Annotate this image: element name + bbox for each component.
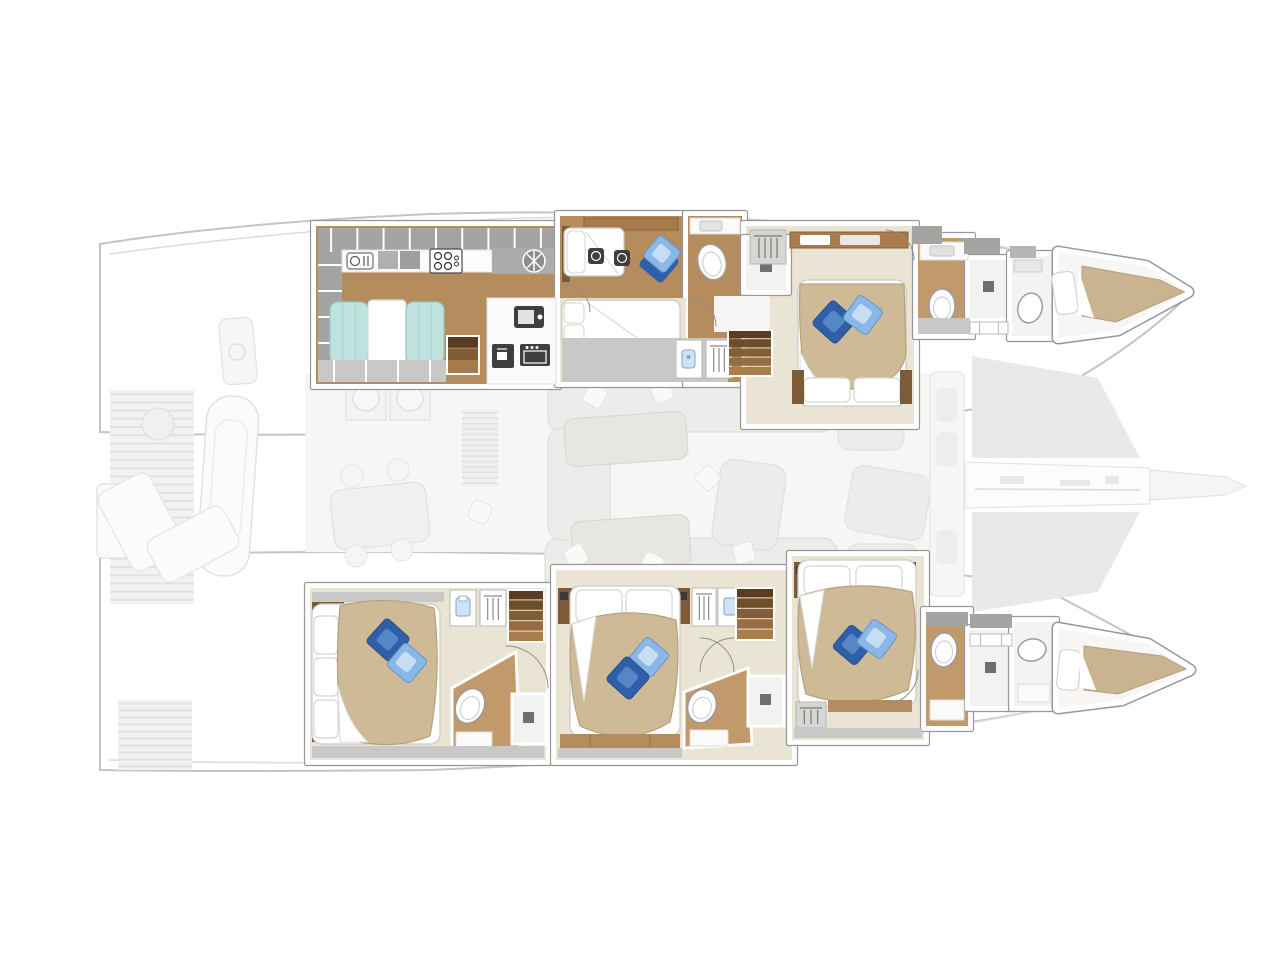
stair-landing <box>714 296 770 332</box>
coffee-cup <box>497 352 507 360</box>
galley-aft-locker <box>318 360 446 382</box>
vip-sink <box>930 246 954 256</box>
galley-steps <box>447 336 479 374</box>
oven-knob-1 <box>526 346 529 349</box>
oven-knob-3 <box>536 346 539 349</box>
fwd-shower-cabinet-top <box>970 614 1012 628</box>
fwd-bench-wood <box>828 700 912 712</box>
forebeam-fitting-2 <box>1060 480 1090 486</box>
bow-wc-cabinet <box>1014 260 1042 272</box>
counter-module-1 <box>378 251 398 269</box>
forebeam-fitting-3 <box>1105 476 1119 484</box>
aft-vanity <box>456 732 492 748</box>
deck-segment-1 <box>912 226 942 244</box>
fwd-locker-bottom <box>794 728 922 738</box>
vip-nightstand-left <box>792 370 804 404</box>
deck-segment-3 <box>1010 246 1036 258</box>
trampoline-aft <box>972 512 1140 612</box>
shower-drain-fwd <box>985 662 996 673</box>
washer-icon <box>588 248 604 264</box>
shower-drain-mid <box>760 694 771 705</box>
twin-pillow-1 <box>564 303 584 323</box>
shower-drain-aft <box>523 712 534 723</box>
shower-drain-vip <box>983 281 994 292</box>
cockpit-chair-3 <box>345 545 367 567</box>
companionway-port <box>508 590 544 642</box>
aft-cabin-locker-bottom <box>312 746 544 758</box>
aft-bed-pillow-1 <box>314 616 338 654</box>
mid-locker-bottom <box>558 748 682 758</box>
trampoline-fwd <box>972 356 1140 458</box>
vip-shelf-item-1 <box>800 235 830 245</box>
cockpit-chair-4 <box>391 539 413 561</box>
cockpit-chair-1 <box>341 465 363 487</box>
cockpit-table <box>329 481 431 551</box>
salon-table-2 <box>570 514 691 572</box>
forebeam-line <box>975 489 1140 490</box>
floorplan-svg <box>0 0 1280 960</box>
forebeam <box>965 462 1150 508</box>
companionway-mid <box>736 588 774 640</box>
louver-panel <box>462 410 498 486</box>
catamaran-floorplan <box>0 0 1280 960</box>
deck-table-round <box>142 408 174 440</box>
vip-pillow-2 <box>854 378 900 402</box>
fwd-shower-bench <box>970 634 1012 646</box>
deck-segment-2 <box>964 238 1000 254</box>
aft-bed-pillow-2 <box>314 658 338 696</box>
bow-berth-pillow-port <box>1056 649 1082 691</box>
washbasin-drain <box>687 355 691 359</box>
vip-shower-bench <box>970 322 1008 334</box>
vip-shelf-item-2 <box>840 235 880 245</box>
helm-console <box>218 317 258 386</box>
bowsprit <box>1150 470 1246 500</box>
settee-cushion-left <box>330 302 368 364</box>
vip-duvet <box>800 284 906 389</box>
vip-pillow-1 <box>804 378 850 402</box>
microwave-knob <box>538 315 543 320</box>
mid-headboard-left-speaker <box>560 592 568 600</box>
vip-nightstand-right <box>900 370 912 404</box>
dinette-table <box>368 300 406 366</box>
companionway-starboard <box>728 330 772 376</box>
salon-table-1 <box>563 411 688 467</box>
bow-wc-bench-port <box>1018 684 1050 702</box>
cockpit-chair-2 <box>387 459 409 481</box>
vip-bath-locker <box>918 318 970 334</box>
mast-step-3 <box>936 530 958 564</box>
salon-lounger <box>710 458 787 552</box>
fwd-bath-vanity <box>930 700 964 720</box>
mid-bench-wood <box>560 734 680 748</box>
microwave-window <box>518 310 534 324</box>
mast-step-1 <box>936 388 958 422</box>
aft-bed-pillow-3 <box>314 700 338 738</box>
mid-vanity <box>690 730 728 746</box>
vip-wardrobe <box>750 230 786 264</box>
forebeam-fitting-1 <box>1000 476 1024 484</box>
fwd-bath-cabinet-top <box>926 612 968 626</box>
crew-berth-pillow <box>567 231 585 273</box>
settee-cushion-right <box>406 302 444 364</box>
shirt-collar <box>459 596 467 601</box>
hull-locker-band <box>562 338 728 382</box>
starboard-lounge-2 <box>843 464 933 543</box>
mast-step-2 <box>936 432 958 466</box>
counter-module-2 <box>400 251 420 269</box>
dryer-icon <box>614 250 630 266</box>
vip-toilet <box>929 289 955 323</box>
oven-knob-2 <box>531 346 534 349</box>
crew-bath-sink <box>700 221 722 231</box>
